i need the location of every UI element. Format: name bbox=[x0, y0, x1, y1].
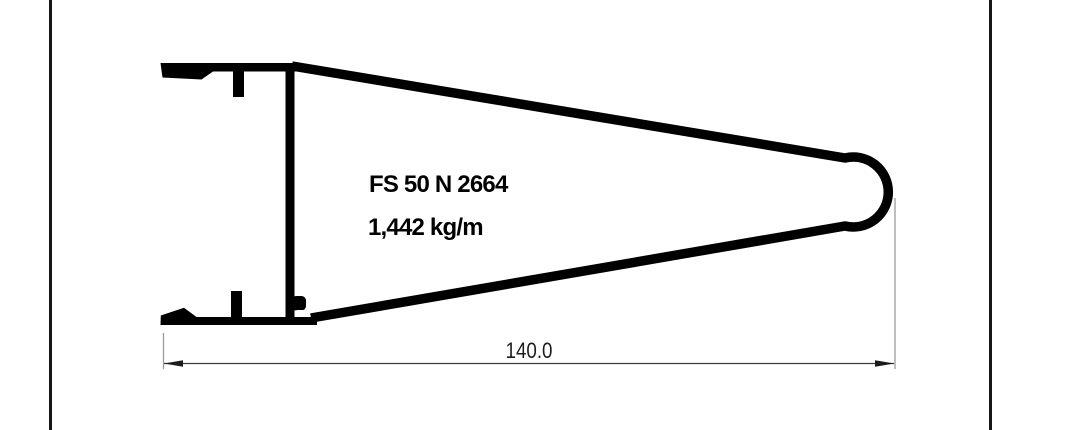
profile-bottom-tab bbox=[231, 291, 242, 318]
technical-drawing-canvas: 140.0 FS 50 N 2664 1,442 kg/m bbox=[0, 0, 1080, 430]
profile-name-label: FS 50 N 2664 bbox=[369, 171, 508, 199]
profile-foot-step bbox=[292, 296, 307, 311]
profile-web bbox=[286, 63, 295, 325]
extrusion-profile-outline bbox=[161, 63, 889, 325]
extrusion-profile-drawing: 140.0 bbox=[0, 0, 1080, 430]
dimension-value: 140.0 bbox=[506, 338, 553, 363]
profile-top-flange bbox=[161, 63, 298, 80]
profile-weight-label: 1,442 kg/m bbox=[368, 214, 483, 242]
profile-foot-notch bbox=[297, 310, 309, 317]
profile-top-tab bbox=[233, 70, 244, 97]
dimension-arrow-left bbox=[164, 360, 183, 367]
dimension-arrow-right bbox=[875, 360, 894, 367]
